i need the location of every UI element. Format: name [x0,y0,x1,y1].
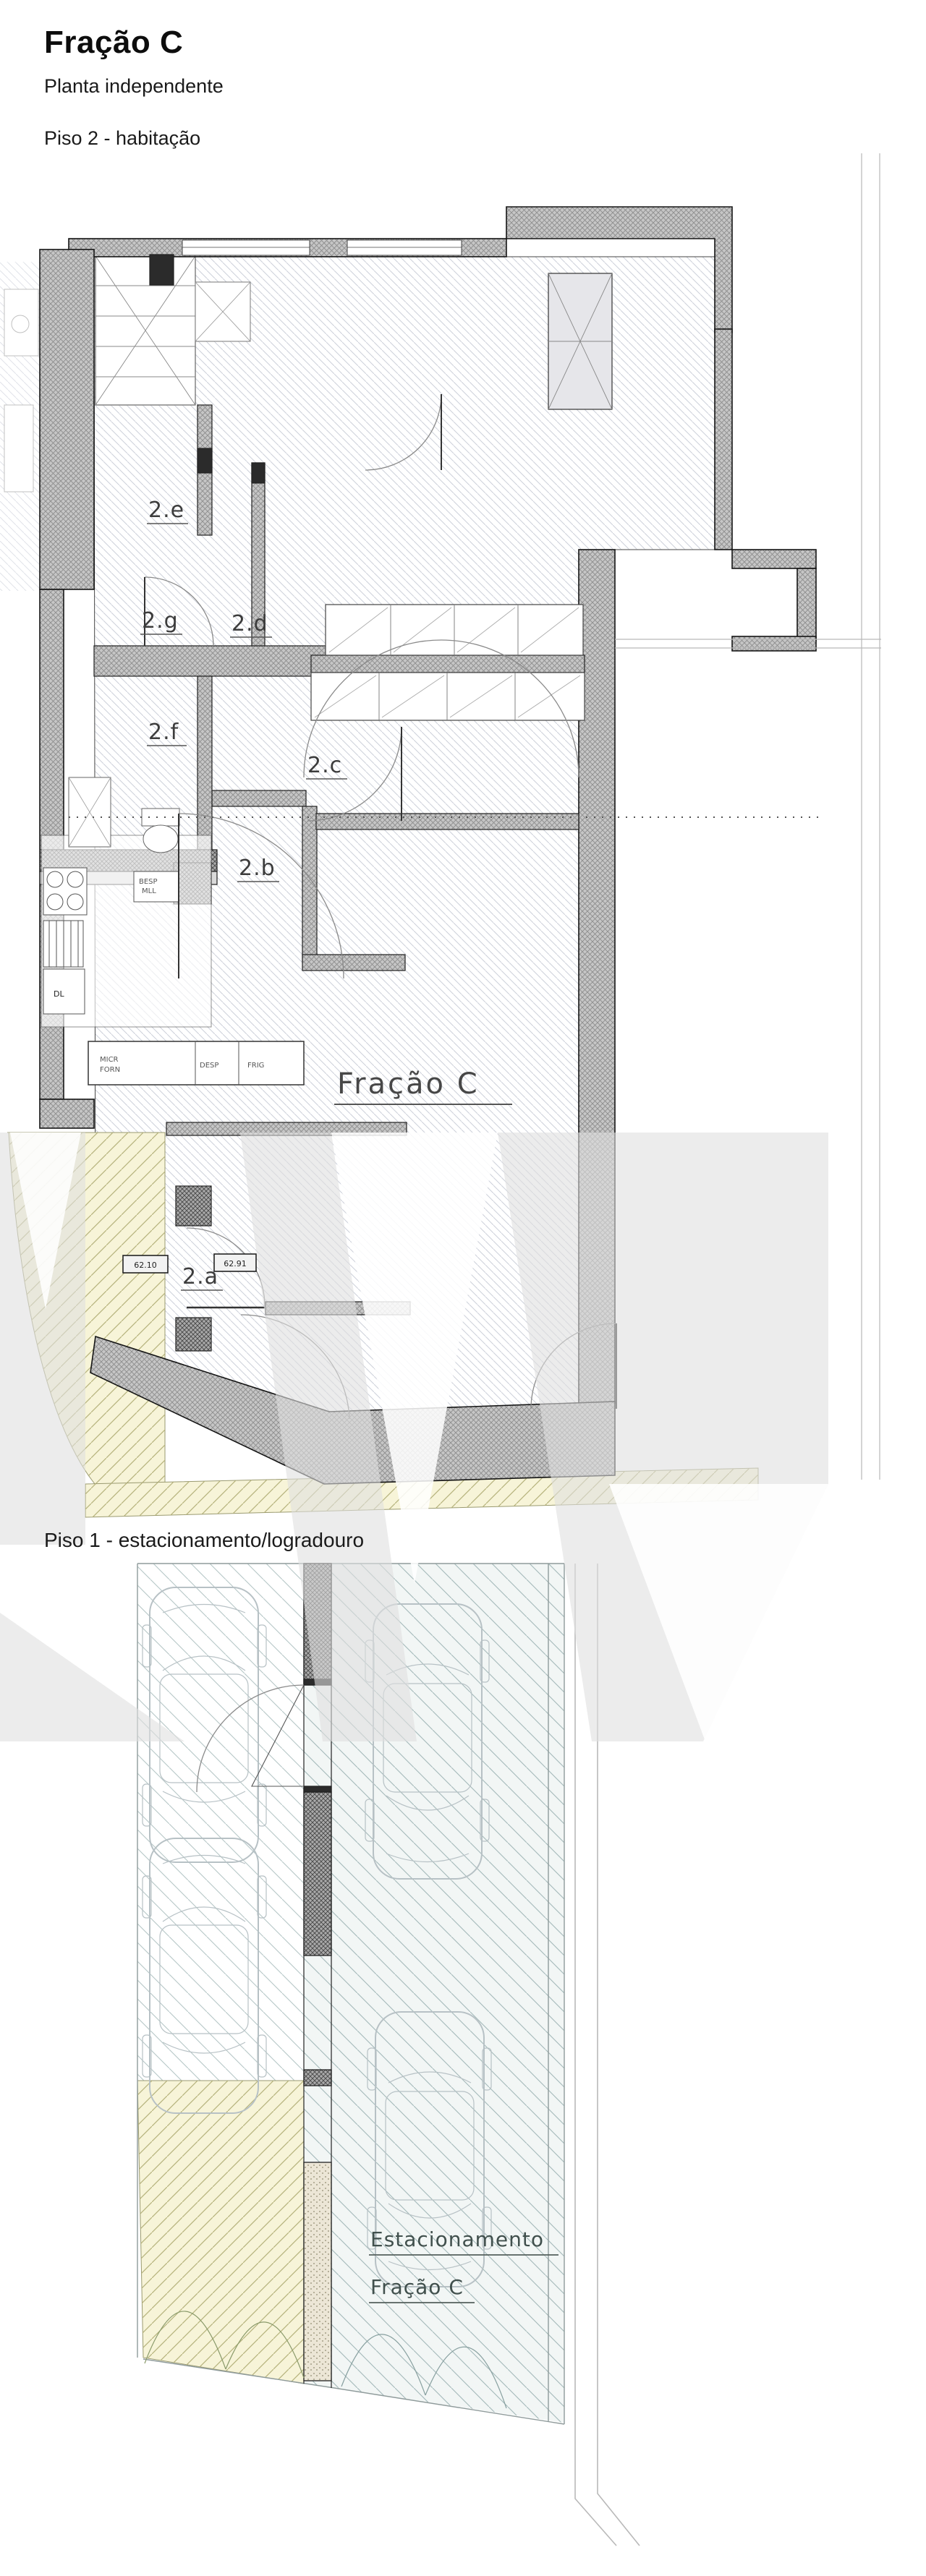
room-label-2d: 2.d [231,611,268,636]
floorplan-canvas: MICR FORN DESP FRIG BESP MLL DL [0,0,926,2576]
terrace-block [548,273,612,409]
parking-label-line1: Estacionamento [370,2227,544,2251]
room-label-2f: 2.f [148,720,179,745]
page-title: Fração C [44,25,183,61]
appliance-label: MICR [100,1056,119,1064]
appliance-label: DESP [200,1062,218,1070]
sink-label: BESP [139,878,158,886]
level-value: 62.91 [224,1259,247,1268]
room-label-2e: 2.e [148,498,184,523]
window-top-1 [182,240,310,255]
appliance-label: FRIG [247,1062,264,1070]
piso1-heading: Piso 1 - estacionamento/logradouro [44,1529,364,1552]
sink-label: MLL [142,887,156,895]
parking-label-line2: Fração C [370,2275,464,2299]
room-label-2g: 2.g [142,608,179,634]
piso2-heading: Piso 2 - habitação [44,127,200,150]
street-lines-upper [862,153,880,1480]
unit-label: Fração C [337,1067,480,1101]
dl-label: DL [54,989,64,999]
level-value: 62.10 [134,1261,157,1270]
logradouro-hatch [137,2081,304,2384]
page-subtitle: Planta independente [44,75,224,98]
appliance-label: FORN [100,1066,120,1074]
room-label-2a: 2.a [182,1264,218,1289]
window-top-2 [347,240,462,255]
page: { "header": { "title": "Fração C", "subt… [0,0,926,2576]
room-label-2b: 2.b [239,856,276,881]
garage-left-hatch [137,1564,304,2081]
neighbour-fragment [0,262,40,591]
room-label-2c: 2.c [307,753,342,778]
